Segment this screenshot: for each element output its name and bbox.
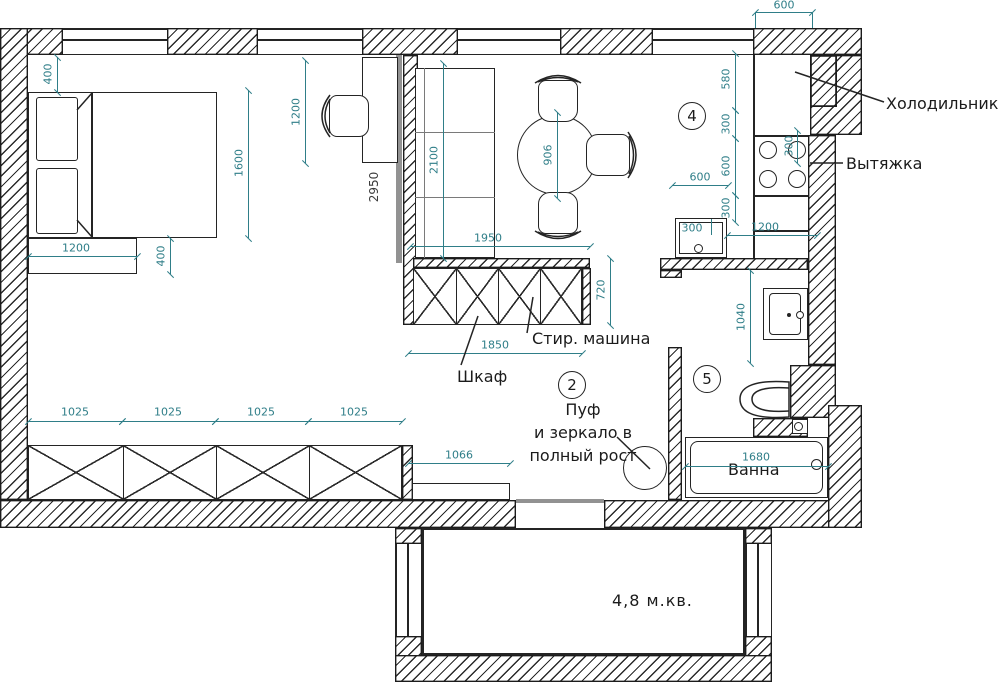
closet-section-2: [123, 446, 216, 499]
dim-desk-length: 1200: [290, 98, 303, 126]
dim-line-fridge-top: [755, 12, 812, 13]
dim-sink-bowl: 300: [682, 222, 703, 235]
dim-table: 906: [542, 145, 555, 166]
dim-line-closet-2: [122, 421, 215, 422]
burner-3: [759, 170, 777, 188]
dim-line-gap2: [735, 195, 736, 222]
vent-shaft: [810, 55, 837, 107]
balcony-wall-right-top: [745, 528, 772, 544]
dim-closet-2: 1025: [154, 406, 182, 419]
dim-bath: 1680: [742, 451, 770, 464]
pipe-circle: [794, 422, 803, 431]
dim-fridge-depth: 580: [720, 69, 733, 90]
wall-right-middle: [808, 135, 836, 365]
balcony-window-left: [395, 544, 422, 636]
dim-line-washbasin: [750, 270, 751, 363]
dim-closet-3: 1025: [247, 406, 275, 419]
wardrobe-section-3: [498, 269, 540, 324]
wall-top-4: [560, 28, 653, 55]
window-4: [653, 28, 753, 55]
closet-section-4: [309, 446, 401, 499]
dim-line-sink: [672, 185, 728, 186]
label-hood: Вытяжка: [846, 154, 922, 173]
closet-section-1: [29, 446, 123, 499]
window-2: [258, 28, 362, 55]
kitchen-cabinet-div2: [415, 197, 495, 198]
dim-line-fridge-depth: [735, 53, 736, 110]
label-pouf-line3: полный рост: [513, 444, 653, 467]
dim-corridor-wall: 2950: [367, 172, 381, 203]
desk-chair-seat: [329, 95, 369, 137]
dim-dresser-depth: 400: [155, 246, 168, 267]
dim-tick-sink-bowl: [711, 219, 712, 235]
dim-line-closet-3: [215, 421, 308, 422]
balcony-interior: [422, 528, 745, 655]
closet-section-3: [216, 446, 309, 499]
dim-line-bench: [408, 463, 510, 464]
label-refrigerator: Холодильник: [886, 94, 998, 113]
room-number-bathroom: 5: [693, 365, 721, 393]
bench: [412, 483, 510, 500]
dim-gap2: 300: [720, 198, 733, 219]
dim-counter-run: 1200: [751, 221, 779, 234]
dim-bed-offset: 400: [42, 64, 55, 85]
dim-line-bed-offset: [57, 57, 58, 92]
balcony-window-right: [745, 544, 772, 636]
washbasin-tap: [787, 313, 791, 317]
dim-line-wardrobe-top: [410, 246, 590, 247]
dim-line-cooktop: [735, 138, 736, 195]
label-balcony-area: 4,8 м.кв.: [612, 591, 693, 610]
wall-bottom-right: [604, 500, 862, 528]
dim-line-bath: [685, 466, 828, 467]
toilet-bowl-inner: [752, 388, 789, 412]
dim-ext-fridge-left: [755, 12, 756, 28]
wall-wardrobe-right: [582, 268, 591, 325]
washbasin-knob: [796, 311, 804, 319]
dim-dresser-width: 1200: [62, 242, 90, 255]
dim-line-desk-length: [305, 60, 306, 163]
counter-div2: [753, 195, 808, 197]
closet-run: [28, 445, 402, 500]
label-washing-machine: Стир. машина: [532, 329, 650, 348]
toilet-bowl: [740, 381, 789, 417]
dim-line-dresser-depth: [170, 238, 171, 274]
wall-bottom-left: [0, 500, 516, 528]
dim-bench: 1066: [445, 449, 473, 462]
wall-top-2: [167, 28, 258, 55]
dining-chair-right: [586, 134, 630, 176]
room-number-kitchen: 4: [678, 102, 706, 130]
dim-gap1: 300: [720, 114, 733, 135]
dim-line-closet-1: [28, 421, 122, 422]
burner-1: [759, 141, 777, 159]
wall-right-lower: [828, 405, 862, 528]
dim-kitchen-cabinet: 2100: [428, 146, 441, 174]
dim-line-bed-length: [248, 90, 249, 238]
pillow-top: [36, 97, 78, 161]
wardrobe-section-2: [456, 269, 498, 324]
balcony-wall-left-top: [395, 528, 422, 544]
dim-bed-length: 1600: [233, 149, 246, 177]
kitchen-cabinet-div1: [415, 132, 495, 133]
dim-line-table: [557, 112, 558, 198]
dim-line-counter-run: [727, 235, 817, 236]
wall-top-3: [362, 28, 458, 55]
label-pouf-line2: и зеркало в: [513, 421, 653, 444]
dim-line-kitchen-cabinet: [443, 63, 444, 258]
floor-plan: 4 2 5 Холодильник Вытяжка Стир. машина Ш…: [0, 0, 999, 682]
dim-wardrobe-depth: 720: [595, 280, 608, 301]
bathtub-drain: [811, 459, 822, 470]
dim-ext-fridge-right: [812, 12, 813, 28]
label-pouf: Пуф и зеркало в полный рост: [513, 398, 653, 467]
dim-wardrobe-width: 1850: [481, 339, 509, 352]
dim-wardrobe-top: 1950: [474, 232, 502, 245]
washing-machine-box: [540, 269, 581, 324]
wall-kitchen-stub: [660, 270, 682, 278]
wall-kitchen-bottom: [660, 258, 808, 270]
dim-fridge-top: 600: [774, 0, 795, 12]
wall-left: [0, 28, 28, 500]
dim-closet-1: 1025: [61, 406, 89, 419]
dim-line-wardrobe-depth: [610, 258, 611, 325]
dim-line-closet-4: [308, 421, 402, 422]
blanket-edge: [91, 93, 93, 237]
wall-top-5: [753, 28, 862, 55]
label-wardrobe: Шкаф: [457, 367, 507, 386]
dim-line-cooktop-offset: [797, 130, 798, 163]
dim-line-gap1: [735, 110, 736, 138]
wall-hall-bath: [668, 347, 682, 500]
pillow-bottom: [36, 168, 78, 234]
counter-div1: [753, 135, 808, 137]
wardrobe-run: [413, 268, 582, 325]
dim-sink: 600: [690, 171, 711, 184]
dim-line-dresser-width: [28, 256, 137, 257]
label-pouf-line1: Пуф: [513, 398, 653, 421]
room-number-hall: 2: [558, 371, 586, 399]
window-1: [63, 28, 167, 55]
dim-washbasin: 1040: [735, 303, 748, 331]
balcony-door-threshold: [516, 499, 604, 503]
dim-closet-4: 1025: [340, 406, 368, 419]
burner-4: [788, 170, 806, 188]
dim-cooktop: 600: [720, 156, 733, 177]
dim-cooktop-offset: 300: [783, 136, 796, 157]
dim-line-wardrobe-width: [408, 353, 582, 354]
window-3: [458, 28, 560, 55]
balcony-wall-bottom: [395, 655, 772, 682]
kitchen-cabinet-line: [424, 68, 425, 258]
wall-wardrobe-top: [413, 258, 590, 268]
kitchen-sink-drain: [694, 244, 703, 253]
wardrobe-section-1: [414, 269, 456, 324]
